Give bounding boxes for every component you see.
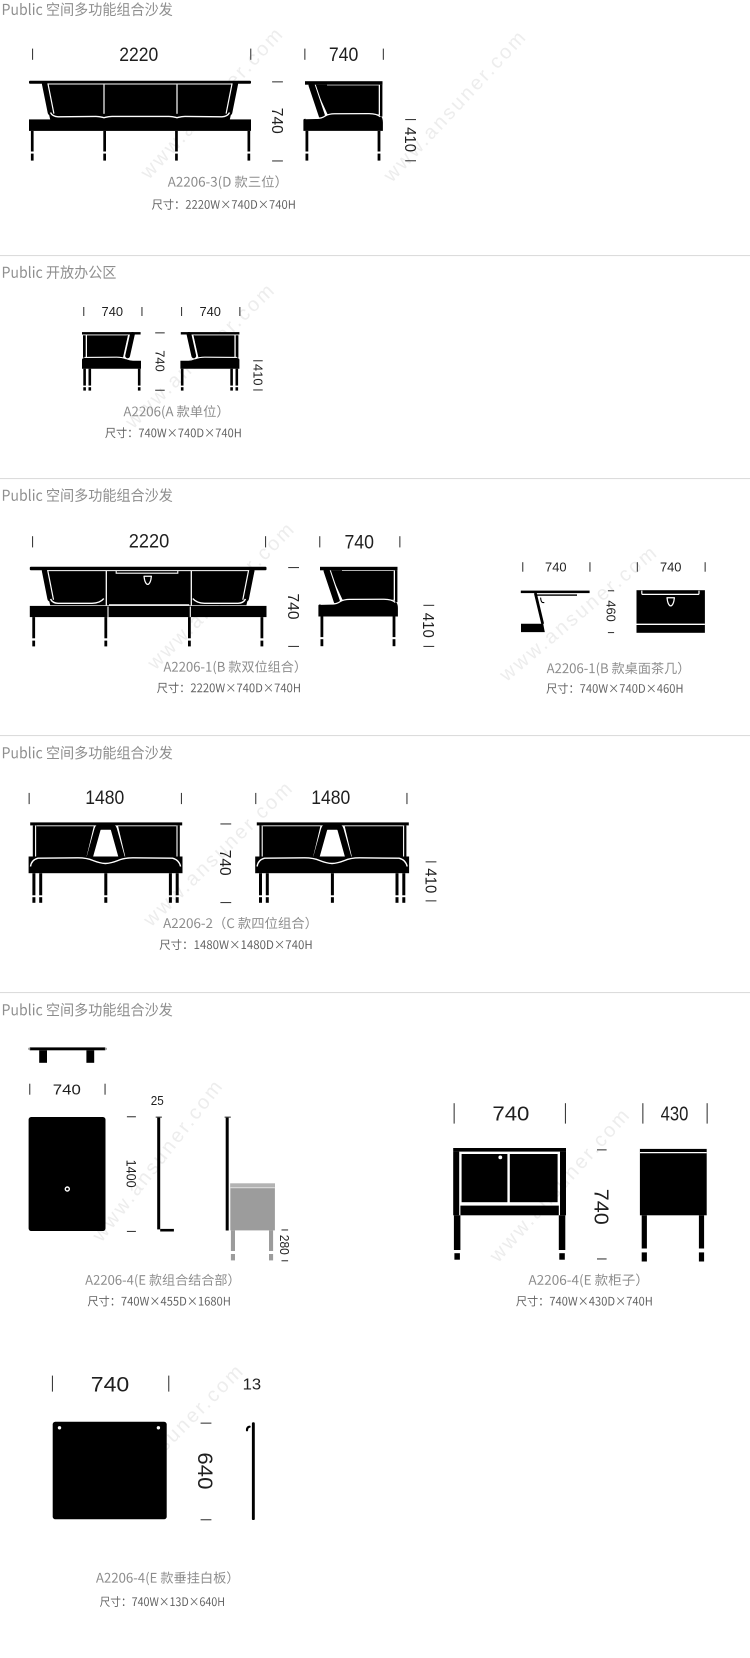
svg-text:740: 740 xyxy=(91,1372,130,1396)
svg-text:460: 460 xyxy=(603,600,618,622)
svg-text:740: 740 xyxy=(545,560,567,575)
svg-text:740: 740 xyxy=(492,1104,529,1126)
svg-text:410: 410 xyxy=(250,364,265,386)
svg-text:2220: 2220 xyxy=(119,45,158,66)
svg-text:1480: 1480 xyxy=(311,788,350,809)
svg-text:430: 430 xyxy=(661,1104,689,1126)
svg-text:740: 740 xyxy=(53,1082,81,1099)
svg-text:www.ansuner.com: www.ansuner.com xyxy=(379,25,532,187)
svg-text:740: 740 xyxy=(152,350,167,372)
svg-text:740: 740 xyxy=(284,594,301,620)
svg-text:280: 280 xyxy=(277,1235,291,1255)
svg-text:1480: 1480 xyxy=(85,788,124,809)
svg-text:740: 740 xyxy=(590,1189,612,1225)
svg-text:740: 740 xyxy=(268,108,285,134)
svg-text:740: 740 xyxy=(344,533,374,554)
svg-text:740: 740 xyxy=(199,304,221,319)
svg-text:13: 13 xyxy=(243,1377,262,1394)
svg-text:740: 740 xyxy=(216,850,233,876)
svg-text:2220: 2220 xyxy=(129,531,170,552)
svg-text:410: 410 xyxy=(421,868,438,893)
svg-text:740: 740 xyxy=(329,45,359,66)
svg-text:740: 740 xyxy=(660,560,682,575)
svg-text:25: 25 xyxy=(151,1094,164,1108)
svg-text:740: 740 xyxy=(102,304,124,319)
svg-text:1400: 1400 xyxy=(123,1160,139,1188)
svg-text:640: 640 xyxy=(193,1452,217,1489)
svg-text:410: 410 xyxy=(401,127,418,152)
svg-text:410: 410 xyxy=(419,613,436,638)
